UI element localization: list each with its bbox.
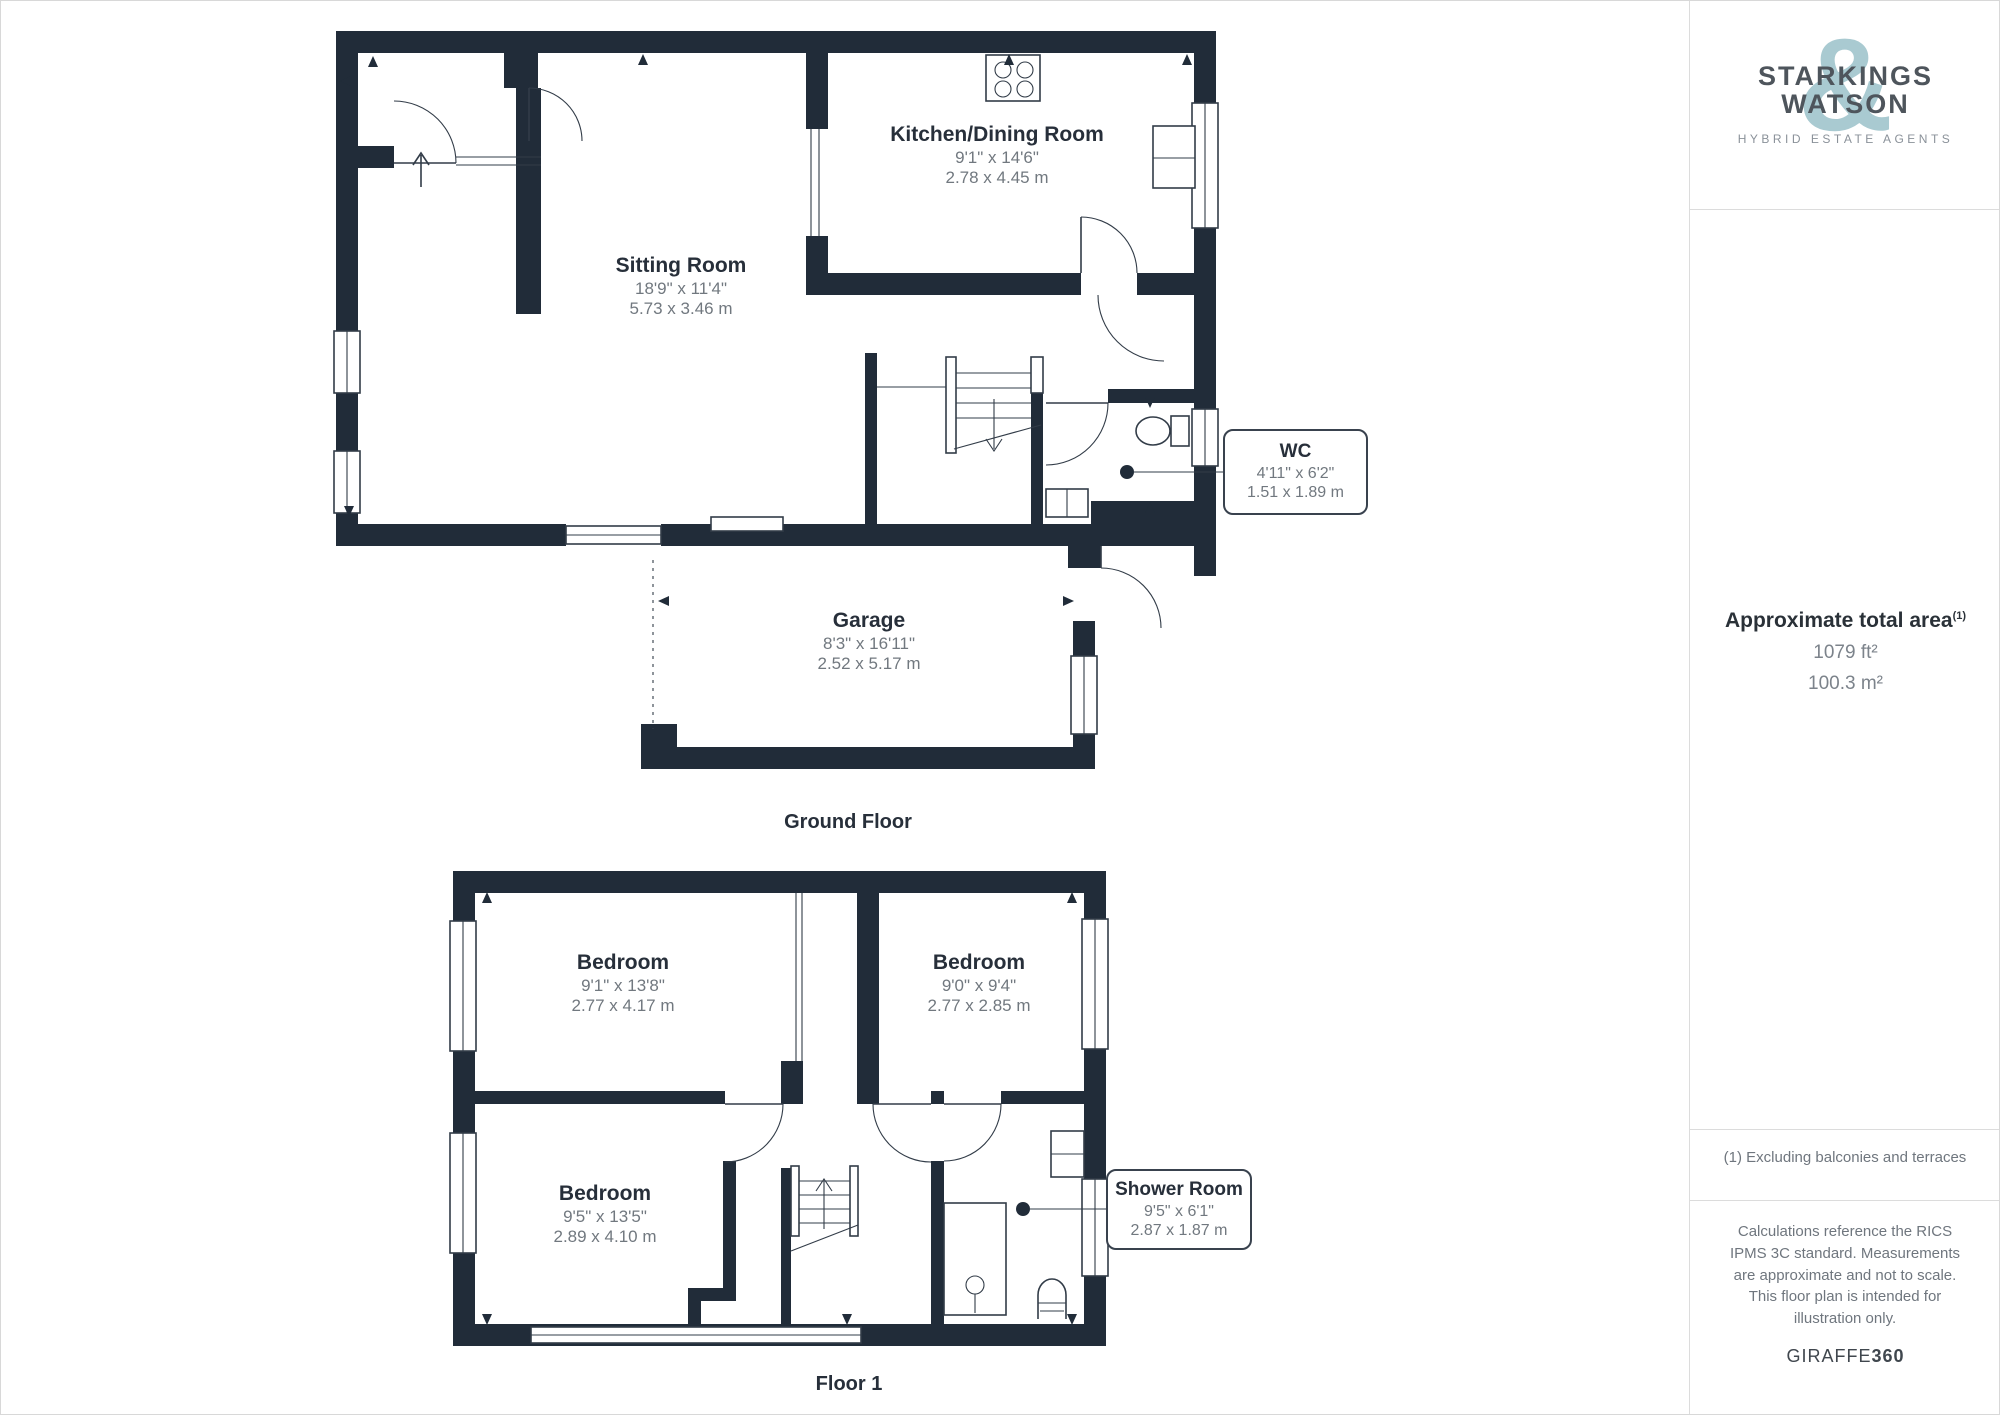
logo-line1: STARKINGS xyxy=(1690,63,2000,91)
agency-logo: & STARKINGS WATSON HYBRID ESTATE AGENTS xyxy=(1690,31,2000,181)
room-dim-imperial: 18'9" x 11'4" xyxy=(616,279,747,299)
giraffe360-watermark: GIRAFFE360 xyxy=(1690,1346,2000,1367)
room-name: Bedroom xyxy=(571,951,674,976)
room-name: Garage xyxy=(817,609,920,634)
room-label-kitchen: Kitchen/Dining Room 9'1" x 14'6" 2.78 x … xyxy=(890,123,1104,188)
floor1-doors xyxy=(725,1104,1001,1162)
room-dim-metric: 2.77 x 2.85 m xyxy=(927,996,1030,1016)
total-area-block: Approximate total area(1) 1079 ft² 100.3… xyxy=(1690,609,2000,695)
room-dim-imperial: 9'0" x 9'4" xyxy=(927,976,1030,996)
room-dim-imperial: 4'11" x 6'2" xyxy=(1257,464,1335,483)
room-dim-metric: 2.89 x 4.10 m xyxy=(553,1227,656,1247)
giraffe-360: 360 xyxy=(1871,1346,1904,1366)
room-dim-imperial: 8'3" x 16'11" xyxy=(817,634,920,654)
room-dim-metric: 2.87 x 1.87 m xyxy=(1131,1221,1228,1240)
room-dim-metric: 5.73 x 3.46 m xyxy=(616,299,747,319)
room-name: Bedroom xyxy=(927,951,1030,976)
room-dim-imperial: 9'1" x 14'6" xyxy=(890,148,1104,168)
room-dim-imperial: 9'5" x 6'1" xyxy=(1144,1202,1214,1221)
sidebar-divider xyxy=(1690,1200,2000,1201)
sidebar-divider xyxy=(1690,209,2000,210)
floorplan-page: Sitting Room 18'9" x 11'4" 5.73 x 3.46 m… xyxy=(0,0,2000,1415)
stairs-down-icon xyxy=(946,357,1043,453)
room-name: Sitting Room xyxy=(616,254,747,279)
wc-callout: WC 4'11" x 6'2" 1.51 x 1.89 m xyxy=(1223,429,1368,515)
room-dim-imperial: 9'5" x 13'5" xyxy=(553,1207,656,1227)
footnote-ref: (1) xyxy=(1953,610,1966,622)
room-name: Kitchen/Dining Room xyxy=(890,123,1104,148)
shower-room-callout: Shower Room 9'5" x 6'1" 2.87 x 1.87 m xyxy=(1106,1169,1252,1250)
floor1-fixtures xyxy=(944,1131,1084,1319)
sidebar-divider xyxy=(1690,1129,2000,1130)
room-dim-metric: 2.52 x 5.17 m xyxy=(817,654,920,674)
room-label-garage: Garage 8'3" x 16'11" 2.52 x 5.17 m xyxy=(817,609,920,674)
room-label-sitting-room: Sitting Room 18'9" x 11'4" 5.73 x 3.46 m xyxy=(616,254,747,319)
disclaimer-text: Calculations reference the RICS IPMS 3C … xyxy=(1725,1221,1965,1330)
stairs-up-icon xyxy=(791,1166,858,1251)
sidebar: & STARKINGS WATSON HYBRID ESTATE AGENTS … xyxy=(1689,1,2000,1414)
cupboard-doors xyxy=(796,893,802,1061)
area-footnote: (1) Excluding balconies and terraces xyxy=(1705,1149,1985,1166)
logo-wordmark: STARKINGS WATSON xyxy=(1690,31,2000,118)
total-area-imperial: 1079 ft² xyxy=(1690,642,2000,664)
room-label-bedroom1: Bedroom 9'1" x 13'8" 2.77 x 4.17 m xyxy=(571,951,674,1016)
floor1-walls xyxy=(453,871,1106,1346)
logo-line2: WATSON xyxy=(1690,91,2000,119)
room-name: Shower Room xyxy=(1115,1179,1243,1202)
total-area-title: Approximate total area(1) xyxy=(1690,609,2000,633)
room-label-bedroom2: Bedroom 9'0" x 9'4" 2.77 x 2.85 m xyxy=(927,951,1030,1016)
floor1-plan xyxy=(450,871,1108,1346)
room-label-bedroom3: Bedroom 9'5" x 13'5" 2.89 x 4.10 m xyxy=(553,1182,656,1247)
total-area-metric: 100.3 m² xyxy=(1690,673,2000,695)
ground-floor-title: Ground Floor xyxy=(784,811,912,834)
room-name: Bedroom xyxy=(553,1182,656,1207)
giraffe-brand: GIRAFFE xyxy=(1786,1346,1871,1366)
floor1-title: Floor 1 xyxy=(816,1373,883,1396)
room-dim-imperial: 9'1" x 13'8" xyxy=(571,976,674,996)
room-dim-metric: 2.77 x 4.17 m xyxy=(571,996,674,1016)
room-dim-metric: 2.78 x 4.45 m xyxy=(890,168,1104,188)
entrance-arrow-icon xyxy=(413,153,429,187)
room-name: WC xyxy=(1280,441,1312,464)
room-dim-metric: 1.51 x 1.89 m xyxy=(1247,483,1344,502)
logo-tagline: HYBRID ESTATE AGENTS xyxy=(1690,132,2000,146)
